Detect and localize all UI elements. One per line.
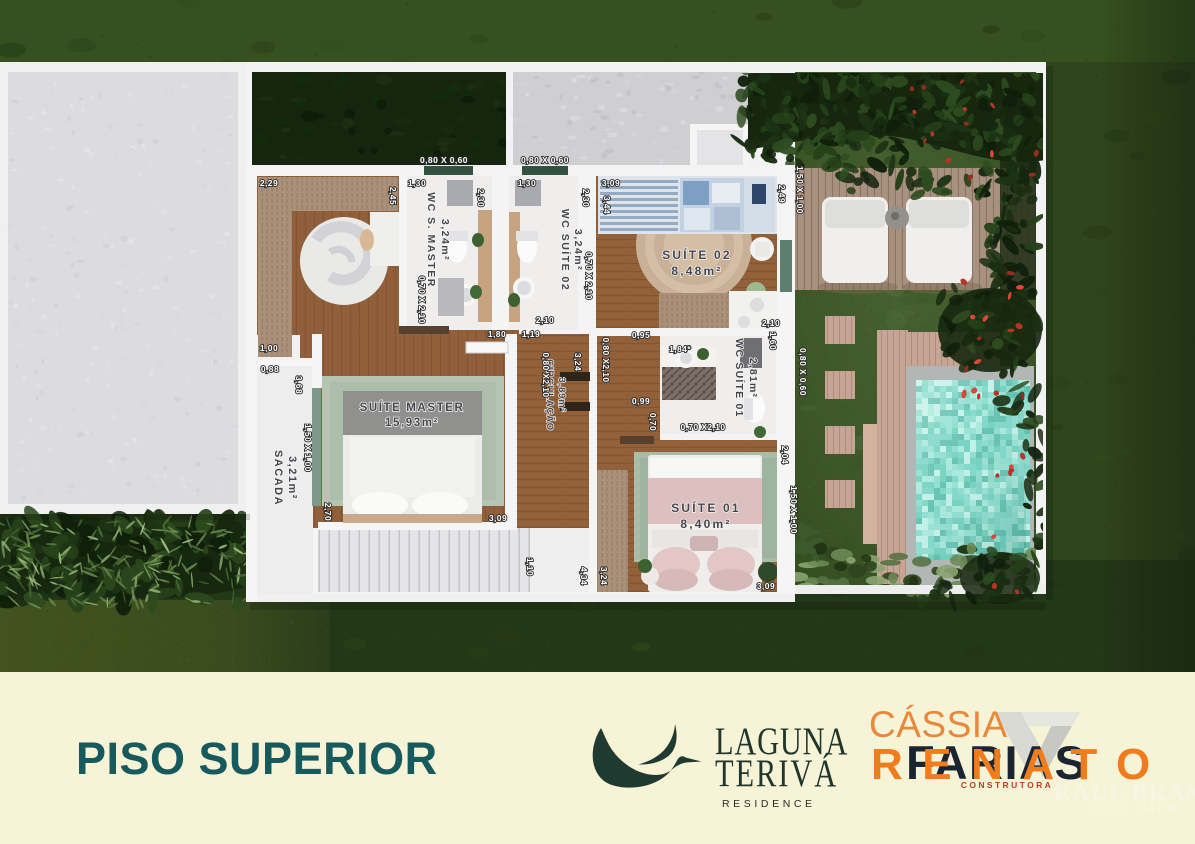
- svg-text:3,44: 3,44: [602, 196, 612, 214]
- svg-text:3,24: 3,24: [573, 353, 583, 371]
- svg-text:WC SUÍTE 02: WC SUÍTE 02: [559, 209, 572, 291]
- svg-text:1,10: 1,10: [525, 558, 535, 576]
- svg-text:1,30: 1,30: [518, 178, 536, 188]
- svg-text:0,70: 0,70: [648, 413, 658, 431]
- svg-text:1,50 X 1,00: 1,50 X 1,00: [795, 166, 805, 214]
- svg-text:15,93m²: 15,93m²: [385, 417, 439, 429]
- svg-text:1,84*: 1,84*: [669, 344, 691, 354]
- svg-text:RESIDENCE: RESIDENCE: [722, 798, 816, 810]
- svg-text:0,88: 0,88: [261, 364, 279, 374]
- svg-text:2,04: 2,04: [780, 446, 790, 464]
- svg-text:3,09: 3,09: [602, 178, 620, 188]
- svg-text:CRECI 34790: CRECI 34790: [1090, 801, 1181, 815]
- svg-text:1,60: 1,60: [768, 332, 778, 350]
- svg-text:3,24m²: 3,24m²: [572, 229, 584, 271]
- svg-text:1,80: 1,80: [488, 329, 506, 339]
- svg-text:1,19: 1,19: [522, 329, 540, 339]
- svg-text:2,29: 2,29: [260, 178, 278, 188]
- svg-text:2,81m²: 2,81m²: [747, 358, 759, 398]
- svg-text:3,21m²: 3,21m²: [286, 456, 298, 500]
- svg-text:1,30: 1,30: [408, 178, 426, 188]
- svg-text:3,68: 3,68: [294, 376, 304, 394]
- svg-text:3,09: 3,09: [757, 581, 775, 591]
- svg-text:0,80 X 0,60: 0,80 X 0,60: [521, 155, 569, 165]
- svg-text:1,50 X 1,00: 1,50 X 1,00: [303, 424, 313, 472]
- svg-text:4,34: 4,34: [579, 567, 589, 585]
- svg-text:0,80 X 0,60: 0,80 X 0,60: [420, 155, 468, 165]
- svg-text:0,80 X2,10: 0,80 X2,10: [541, 352, 551, 397]
- svg-text:PISO SUPERIOR: PISO SUPERIOR: [76, 733, 438, 784]
- svg-text:2,49: 2,49: [777, 185, 787, 203]
- svg-text:TERIVÁ: TERIVÁ: [715, 751, 838, 794]
- svg-text:0,99: 0,99: [632, 396, 650, 406]
- svg-text:SACADA: SACADA: [272, 450, 284, 506]
- svg-text:0,80 X2,10: 0,80 X2,10: [601, 337, 611, 382]
- svg-text:0,70 X 2,10: 0,70 X 2,10: [417, 276, 427, 324]
- svg-text:8,48m²: 8,48m²: [671, 264, 722, 278]
- svg-text:0,70 X 2,10: 0,70 X 2,10: [584, 252, 594, 300]
- svg-text:8,40m²: 8,40m²: [680, 517, 731, 531]
- svg-text:3,89m²: 3,89m²: [556, 378, 567, 413]
- svg-text:1,00: 1,00: [260, 343, 278, 353]
- svg-text:0,95: 0,95: [632, 330, 650, 340]
- svg-text:3,24: 3,24: [599, 567, 609, 585]
- svg-text:2,30: 2,30: [581, 189, 591, 207]
- svg-text:2,10: 2,10: [536, 315, 554, 325]
- svg-text:SUÍTE 01: SUÍTE 01: [671, 500, 741, 515]
- svg-text:3,24m²: 3,24m²: [439, 219, 451, 261]
- svg-text:SUÍTE MASTER: SUÍTE MASTER: [360, 401, 465, 414]
- svg-text:WC SUÍTE 01: WC SUÍTE 01: [733, 338, 746, 417]
- svg-text:2,70: 2,70: [323, 503, 333, 521]
- svg-text:WC S. MASTER: WC S. MASTER: [425, 192, 437, 288]
- svg-text:3,09: 3,09: [489, 513, 507, 523]
- svg-text:2,45: 2,45: [388, 187, 398, 205]
- svg-text:0,70 X2,10: 0,70 X2,10: [680, 422, 725, 432]
- svg-text:1,50 X 1,00: 1,50 X 1,00: [789, 486, 799, 534]
- svg-text:CONSTRUTORA: CONSTRUTORA: [961, 780, 1053, 790]
- svg-text:SUÍTE 02: SUÍTE 02: [662, 247, 732, 262]
- svg-text:2,10: 2,10: [762, 318, 780, 328]
- svg-text:0,80 X 0,60: 0,80 X 0,60: [798, 348, 808, 396]
- svg-text:2,30: 2,30: [476, 189, 486, 207]
